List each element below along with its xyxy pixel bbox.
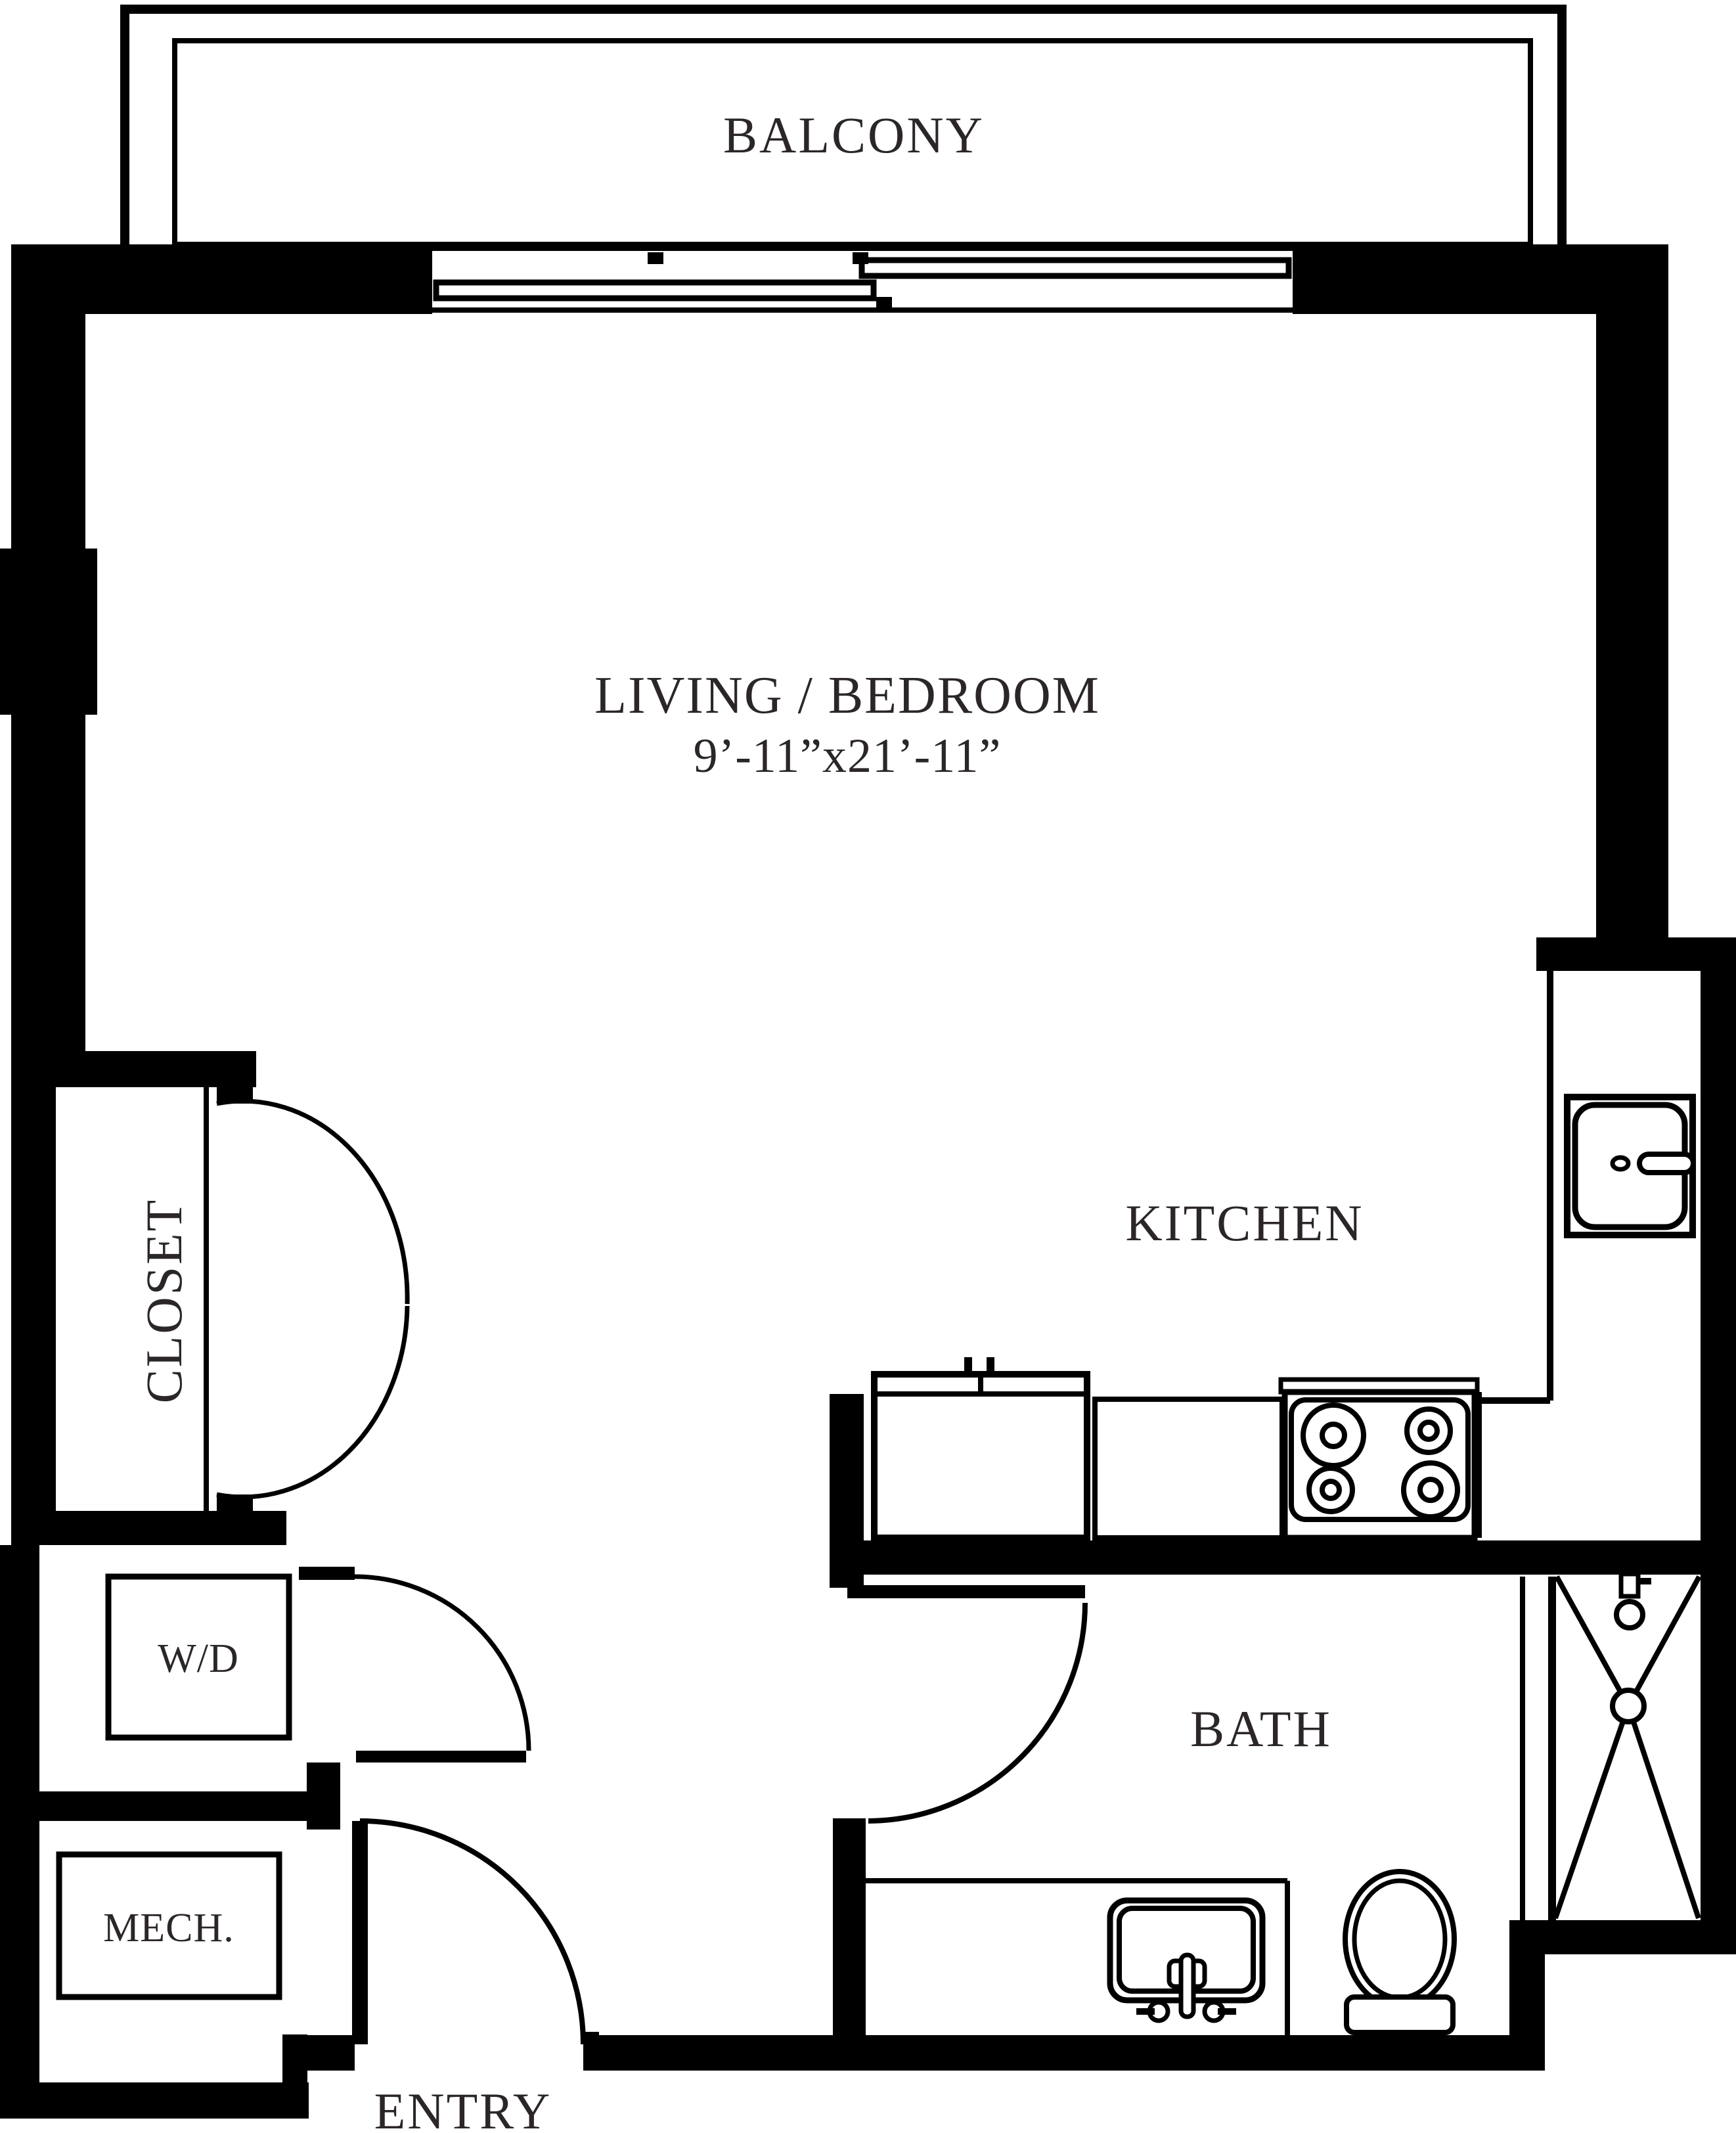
entry-door: [352, 1821, 583, 2044]
wall-entry-left: [282, 2035, 355, 2071]
floor-plan-drawing: BALCONY LIVING / BEDROOM 9’-11”x21’-11” …: [0, 0, 1736, 2133]
shower-valve-tick: [1638, 1578, 1651, 1584]
wall-mech-bottom: [0, 2082, 309, 2119]
shower: [1523, 1574, 1699, 1920]
wall-closet-left: [11, 1087, 56, 1511]
bath-vanity-sink: [1110, 1900, 1262, 2021]
window-stop-1: [648, 252, 663, 264]
wall-shower-bottom: [1545, 1920, 1736, 1954]
wall-corner-block: [307, 1763, 340, 1830]
shower-slope-bl: [1555, 1706, 1628, 1918]
wall-bottom: [583, 2035, 1545, 2071]
closet-door-arc-upper: [217, 1101, 407, 1304]
toilet: [1345, 1872, 1454, 2032]
burner-tl-inner: [1322, 1424, 1345, 1447]
burner-br-inner: [1420, 1479, 1441, 1500]
bath-door-arc: [868, 1603, 1085, 1821]
washer-dryer-label: W/D: [158, 1636, 239, 1681]
vanity-faucet-spout: [1181, 1955, 1193, 2017]
kitchen-sink-drain: [1613, 1157, 1628, 1169]
sliding-window: [432, 248, 1293, 310]
wall-hall-kitchen-block: [830, 1394, 864, 1588]
wall-closet-bottom: [11, 1511, 286, 1545]
burner-tl-outer: [1303, 1405, 1364, 1466]
toilet-bowl-outer: [1345, 1872, 1454, 2007]
stove-cooktop: [1281, 1380, 1477, 1538]
shower-slope-br: [1628, 1706, 1699, 1918]
laundry-door-jamb: [299, 1567, 355, 1580]
wall-laundry-left: [0, 1545, 39, 1821]
bath-door-leaf: [847, 1585, 1085, 1598]
kitchen-counter-middle: [1095, 1399, 1282, 1538]
kitchen-sink-cabinet: [874, 1374, 1087, 1538]
closet: [206, 1087, 407, 1511]
floor-plan-page: BALCONY LIVING / BEDROOM 9’-11”x21’-11” …: [0, 0, 1736, 2133]
wall-mech-top: [37, 1791, 307, 1821]
burner-tr-outer: [1407, 1409, 1450, 1452]
burner-tr-inner: [1420, 1422, 1437, 1439]
shower-head-pipe: [1621, 1574, 1638, 1596]
burner-br-outer: [1404, 1463, 1458, 1517]
living-bedroom-label: LIVING / BEDROOM: [594, 667, 1100, 725]
shower-head: [1616, 1602, 1643, 1628]
entry-label: ENTRY: [374, 2082, 552, 2133]
wall-step-right: [1509, 1920, 1545, 2069]
wall-laundry-band: [356, 1751, 526, 1763]
entry-door-leaf: [352, 1821, 368, 2044]
kitchen-faucet-handle-1: [964, 1357, 972, 1374]
shower-drain: [1613, 1690, 1644, 1722]
kitchen-sink-faucet: [1639, 1154, 1693, 1173]
window-panel-left: [436, 282, 874, 298]
mechanical-label: MECH.: [103, 1906, 234, 1950]
kitchen-label: KITCHEN: [1125, 1194, 1364, 1251]
wall-closet-top: [11, 1051, 256, 1087]
living-bedroom-dimensions: 9’-11”x21’-11”: [694, 729, 1002, 783]
kitchen-faucet-handle-2: [987, 1357, 994, 1374]
wall-bath-left-lower: [833, 1818, 866, 2035]
toilet-bowl-inner: [1354, 1881, 1445, 1998]
bath-label: BATH: [1190, 1700, 1332, 1757]
toilet-tank: [1347, 1997, 1453, 2032]
window-stop-2: [853, 252, 868, 264]
wall-right-upper: [1596, 244, 1668, 971]
kitchen-counters: [874, 971, 1693, 1538]
entry-door-arc: [360, 1821, 583, 2044]
closet-label: CLOSET: [135, 1198, 192, 1404]
wall-left-pier: [0, 549, 97, 715]
bath-door: [847, 1585, 1085, 1821]
walls: [0, 244, 1736, 2119]
wall-right-lower: [1701, 937, 1736, 1954]
window-panel-right: [862, 260, 1289, 276]
balcony-label: BALCONY: [723, 106, 985, 164]
window-stop-3: [876, 297, 892, 309]
kitchen-sink: [1567, 1097, 1693, 1235]
burner-bl-outer: [1309, 1468, 1352, 1512]
bath-fixtures: [866, 1574, 1699, 2035]
burner-bl-inner: [1322, 1481, 1339, 1498]
vanity-handle-left-tick: [1136, 2008, 1155, 2015]
labels: BALCONY LIVING / BEDROOM 9’-11”x21’-11” …: [103, 106, 1364, 2133]
closet-door-arc-lower: [217, 1306, 407, 1497]
wall-kitchen-bath: [864, 1540, 1701, 1575]
vanity-handle-right-tick: [1218, 2008, 1236, 2015]
wall-mech-left: [0, 1821, 39, 2119]
laundry-door-arc: [355, 1577, 529, 1751]
shower-slope-tl: [1557, 1577, 1628, 1706]
